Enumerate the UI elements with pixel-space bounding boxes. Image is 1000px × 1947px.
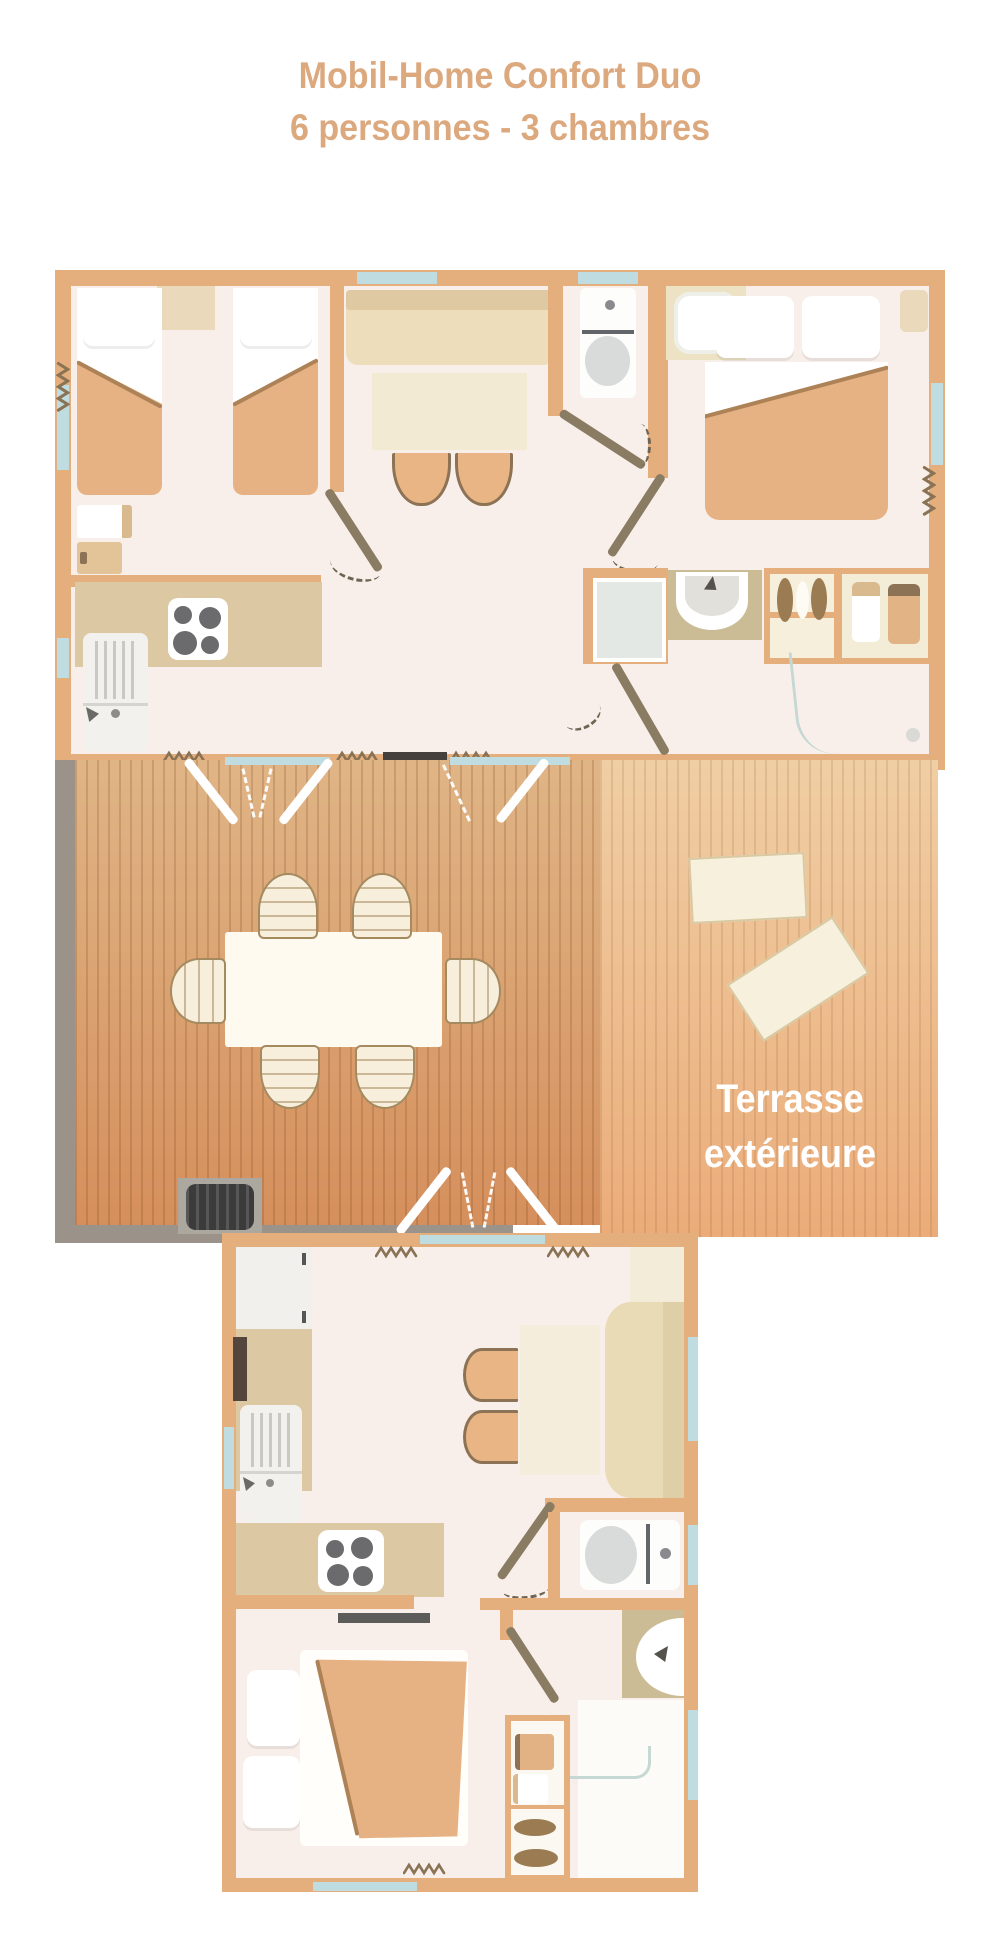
bedside-cabinet-1 [77, 505, 132, 538]
burner [174, 606, 192, 624]
vent-zigzag-icon [375, 1245, 419, 1259]
twin-bed-left [77, 288, 162, 495]
burner [327, 1564, 349, 1586]
drain-icon [906, 728, 920, 742]
kitchen-cabinet [236, 1247, 312, 1329]
stove [318, 1530, 384, 1592]
hanging-clothes-icon [796, 581, 809, 619]
pillow [243, 1756, 300, 1828]
burner [173, 631, 197, 655]
window-left-2 [57, 638, 69, 678]
coffee-table [372, 373, 527, 450]
wall-wc-left [548, 1512, 560, 1598]
terrace-label-line2: extérieure [628, 1127, 952, 1182]
shoes-icon [514, 1849, 558, 1867]
shower-tray [593, 578, 666, 662]
burner [326, 1540, 344, 1558]
burner [199, 607, 221, 629]
sofa [346, 290, 555, 365]
bedside-cabinet-2 [77, 542, 122, 574]
faucet-icon [654, 1646, 668, 1662]
pillow [247, 1670, 300, 1746]
plan-title: Mobil-Home Confort Duo 6 personnes - 3 c… [40, 50, 960, 154]
wardrobe-bottom-cell [511, 1809, 564, 1875]
plan-title-line1: Mobil-Home Confort Duo [40, 50, 960, 102]
floor-plan: Mobil-Home Confort Duo 6 personnes - 3 c… [0, 0, 1000, 1947]
fridge-vents [95, 641, 137, 699]
burner [353, 1566, 373, 1586]
burner [201, 636, 219, 654]
folded-linen-icon [513, 1774, 548, 1804]
master-nightstand [900, 290, 928, 332]
window-left [224, 1427, 234, 1489]
twin-bedroom-nightstand [157, 286, 215, 330]
toilet-flush-button [605, 300, 615, 310]
sofa [605, 1302, 684, 1498]
terrace-chair [170, 958, 226, 1024]
hanging-clothes-icon [777, 578, 793, 622]
pillow [240, 296, 312, 346]
door-sill [420, 1235, 545, 1244]
vent-zigzag-left-icon [56, 362, 70, 414]
shower-floor [578, 1700, 684, 1878]
toilet [580, 288, 636, 398]
wall-wc-right [648, 286, 668, 478]
wardrobe [770, 574, 834, 658]
terrace-border-left [55, 760, 75, 1243]
fridge-divider [83, 703, 148, 706]
toilet [580, 1520, 680, 1590]
wardrobe-top-cell [511, 1721, 564, 1805]
terrace-label-line1: Terrasse [628, 1072, 952, 1127]
sofa-back [346, 290, 555, 310]
toilet-flush-button [660, 1548, 671, 1559]
mattress [705, 362, 888, 520]
tall-dark-unit [233, 1337, 247, 1401]
window-right-1 [688, 1337, 698, 1441]
lounger [688, 852, 807, 924]
sofa-back-top [630, 1247, 684, 1302]
fridge [240, 1405, 302, 1523]
terrace-table [225, 932, 442, 1047]
washer-icon [852, 582, 880, 642]
toilet-bowl [585, 1526, 637, 1584]
pillow [802, 296, 880, 358]
burner [351, 1537, 373, 1559]
bbq-grill [186, 1184, 254, 1230]
stool [463, 1410, 518, 1464]
fridge-knob [266, 1479, 274, 1487]
cabinet-handle [80, 552, 87, 564]
toilet-bowl [585, 336, 630, 386]
vent-zigzag-icon [547, 1245, 591, 1259]
plan-title-line2: 6 personnes - 3 chambres [40, 102, 960, 154]
stool [463, 1348, 518, 1402]
folded-linen-icon [515, 1734, 554, 1770]
bedroom-shelf [338, 1613, 430, 1623]
terrace-chair [352, 873, 412, 939]
window-right-3 [688, 1710, 698, 1800]
bathroom-sink [676, 572, 748, 630]
shoes-icon [514, 1819, 556, 1836]
wall-wc-bathroom [480, 1598, 684, 1610]
terrace-chair [258, 873, 318, 939]
wall-kitchen-bedroom [222, 1595, 414, 1609]
toilet-seat-line [646, 1524, 650, 1584]
window-top-1 [357, 272, 437, 284]
fridge-handle [243, 1477, 255, 1491]
door-sill [225, 757, 330, 765]
pillow [83, 296, 155, 346]
hinge-mark [302, 1311, 306, 1323]
blanket [705, 362, 888, 520]
sofa-armrest [663, 1302, 684, 1498]
shower-glass-line [570, 1746, 651, 1779]
fridge-knob [111, 709, 120, 718]
fridge-divider [240, 1471, 302, 1474]
hamper-icon [888, 584, 920, 644]
fridge [83, 633, 148, 752]
fridge-handle [86, 707, 99, 722]
master-bed [705, 292, 888, 520]
twin-bed-right [233, 288, 318, 495]
door-swing-arc [630, 424, 651, 466]
pillow [716, 296, 794, 358]
toilet-seat-line [582, 330, 634, 334]
storage-cabinet [842, 574, 928, 658]
dining-table [520, 1325, 600, 1475]
vent-zigzag-right-icon [922, 466, 936, 518]
hinge-mark [302, 1253, 306, 1265]
door-sill [450, 757, 570, 765]
wall-living-wc [545, 1498, 684, 1512]
window-top-2 [578, 272, 638, 284]
hanging-clothes-icon [811, 578, 827, 620]
vent-zigzag-icon [403, 1862, 447, 1876]
terrace-label: Terrasse extérieure [628, 1072, 952, 1182]
window-right-1 [931, 383, 943, 465]
window-bottom [313, 1882, 417, 1891]
window-right-2 [688, 1525, 698, 1585]
fridge-vents [251, 1413, 291, 1467]
wall-wc-left [548, 286, 563, 416]
terrace-chair [445, 958, 501, 1024]
wall-twin-bedroom [330, 286, 344, 492]
